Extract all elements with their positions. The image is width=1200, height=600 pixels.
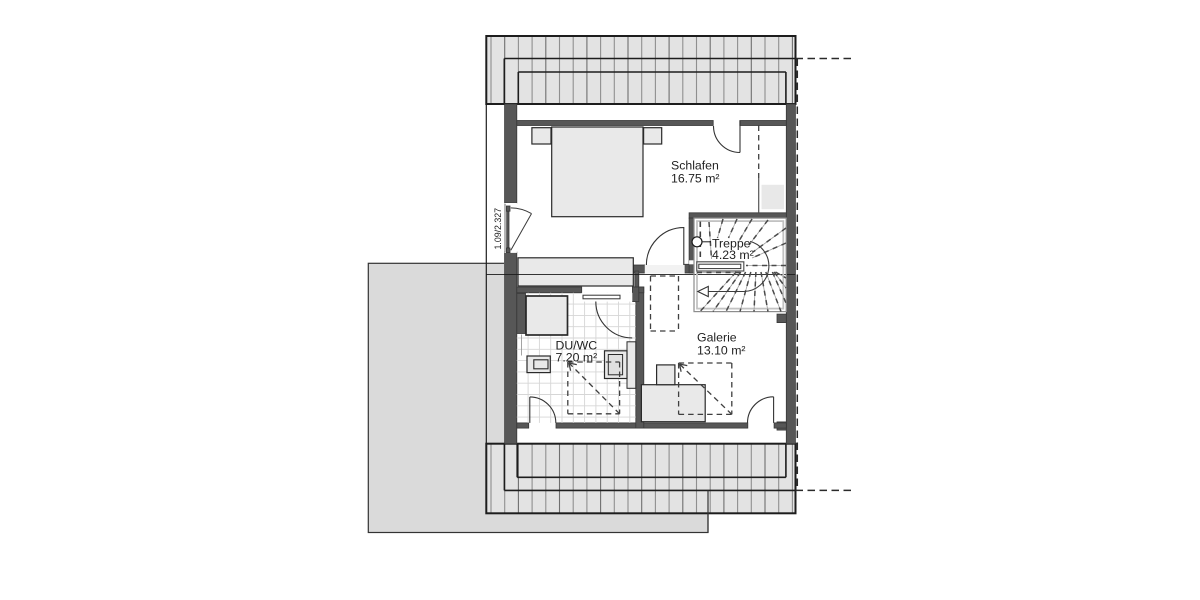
svg-text:Schlafen: Schlafen — [671, 158, 719, 172]
svg-text:13.10 m²: 13.10 m² — [697, 343, 746, 357]
svg-text:Galerie: Galerie — [697, 330, 737, 344]
svg-text:16.75 m²: 16.75 m² — [671, 171, 720, 185]
svg-text:1.09/2.327: 1.09/2.327 — [493, 208, 503, 250]
svg-text:7.20 m²: 7.20 m² — [556, 350, 598, 364]
svg-text:4.23 m²: 4.23 m² — [712, 248, 754, 262]
